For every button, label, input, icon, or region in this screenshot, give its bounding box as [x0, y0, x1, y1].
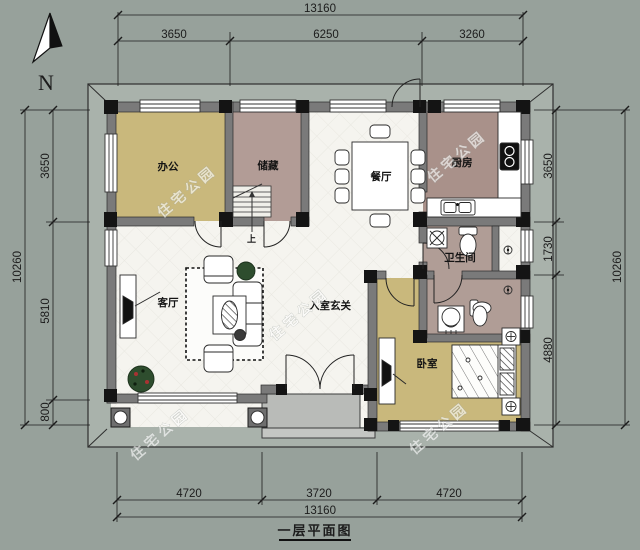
- window-office-top: [140, 100, 200, 112]
- caption-text: 一层平面图: [277, 523, 352, 538]
- dim-bottom-seg1: 4720: [176, 488, 202, 500]
- dining-chair: [335, 169, 349, 184]
- floor-plan-canvas: 上: [0, 0, 640, 550]
- dim-left-seg2: 5810: [40, 298, 52, 324]
- wall-office-living-a: [107, 217, 194, 226]
- wall-bath-shower-divider: [492, 226, 499, 275]
- wall-bath-left-a: [419, 226, 427, 243]
- dining-chair: [335, 150, 349, 165]
- dim-top-seg1: 3650: [161, 29, 187, 41]
- coffee-table-decor: [222, 301, 238, 329]
- window-lowerbath-right: [521, 296, 533, 328]
- dim-bottom-seg2: 3720: [306, 488, 332, 500]
- dim-left-total: 10260: [12, 251, 24, 283]
- bathroom-label: 卫生间: [444, 251, 476, 264]
- floor-plant: [128, 366, 154, 392]
- wall-kitchen-bath: [419, 217, 530, 226]
- bedroom-label: 卧室: [417, 357, 438, 370]
- living-label: 客厅: [157, 296, 179, 309]
- wall-storage-dining: [301, 102, 309, 226]
- dining-chair: [335, 188, 349, 203]
- window-dining-top: [330, 100, 386, 112]
- dim-bottom-seg3: 4720: [436, 488, 462, 500]
- dim-right-seg1: 3650: [543, 153, 555, 179]
- wall-office-storage: [225, 102, 233, 226]
- window-kitchen-right: [521, 140, 533, 184]
- dim-right-seg2: 1730: [543, 236, 555, 262]
- dining-chair: [411, 150, 425, 165]
- office-label: 办公: [158, 160, 179, 173]
- armchair-top: [204, 256, 233, 283]
- dim-top-seg3: 3260: [459, 29, 485, 41]
- window-living-left: [105, 230, 117, 266]
- dim-top: [114, 11, 527, 86]
- window-kitchen-top: [444, 100, 500, 112]
- dim-left-seg1: 3650: [40, 153, 52, 179]
- pillow: [500, 373, 514, 395]
- floor-plan-page: 上: [0, 0, 640, 550]
- wall-foyer-bedroom: [368, 274, 377, 431]
- plan-caption: 一层平面图: [277, 523, 352, 540]
- pillow: [500, 348, 514, 370]
- stairs-up-label: 上: [247, 233, 256, 244]
- dining-chair: [411, 169, 425, 184]
- armchair-bottom: [204, 345, 233, 372]
- dim-top-total: 13160: [304, 3, 336, 15]
- side-table-plant: [237, 262, 255, 280]
- storage-label: 储藏: [258, 159, 279, 172]
- window-office-left: [105, 134, 117, 192]
- dining-chair: [370, 214, 390, 227]
- dining-label: 餐厅: [370, 170, 392, 183]
- entry-porch: [262, 394, 375, 438]
- dim-right-seg3: 4880: [543, 337, 555, 363]
- dining-chair: [411, 188, 425, 203]
- dim-right-total: 10260: [612, 251, 624, 283]
- window-living-bottom: [138, 393, 237, 403]
- dim-bottom-total: 13160: [304, 505, 336, 517]
- dim-left-seg3: 800: [40, 402, 52, 421]
- dining-chair: [370, 125, 390, 138]
- side-stool: [235, 330, 246, 341]
- north-arrow: N: [33, 13, 62, 95]
- dim-left: [20, 106, 90, 429]
- window-storage-top: [240, 100, 296, 112]
- wall-lower-bath-left: [419, 275, 427, 338]
- window-bath-right: [521, 230, 533, 262]
- dim-top-seg2: 6250: [313, 29, 339, 41]
- north-label: N: [38, 70, 54, 95]
